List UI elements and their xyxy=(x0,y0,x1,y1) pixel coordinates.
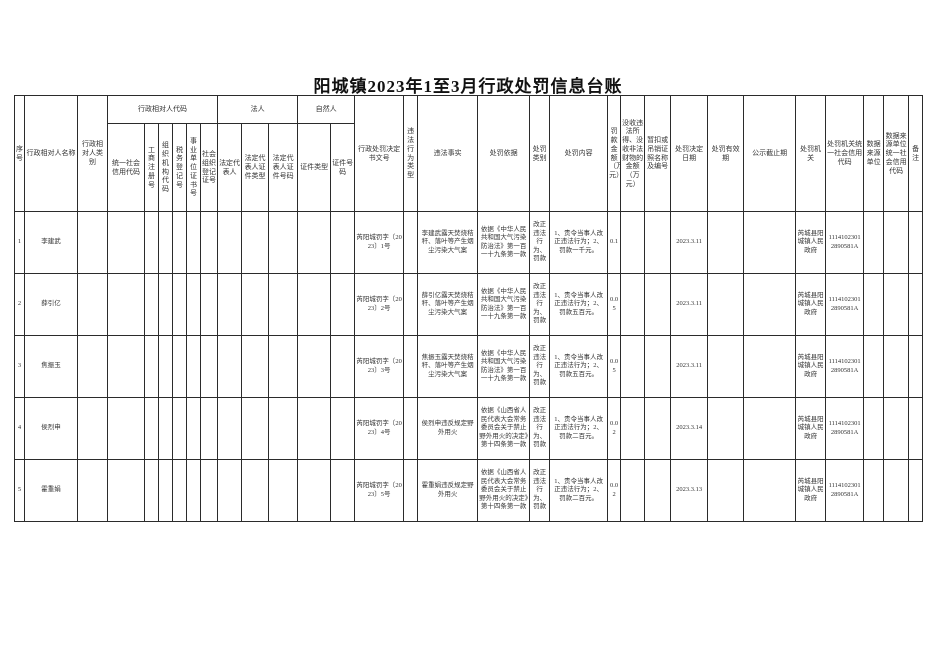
cell-content: 1、责令当事人改正违法行为；2、罚款二百元。 xyxy=(550,398,608,460)
cell-basis: 依据《山西省人民代表大会常务委员会关于禁止野外用火的决定》第十四条第一款 xyxy=(478,460,530,522)
cell-empty xyxy=(78,460,108,522)
cell-seq: 1 xyxy=(15,212,25,274)
cell-seq: 2 xyxy=(15,274,25,336)
col-header-organ-credit-code: 处罚机关统一社会信用代码 xyxy=(826,96,864,212)
page-title: 阳城镇2023年1至3月行政处罚信息台账 xyxy=(14,72,922,97)
cell-empty xyxy=(201,212,218,274)
cell-empty xyxy=(708,336,744,398)
cell-fact: 侯烈申违反规定野外用火 xyxy=(418,398,478,460)
cell-empty xyxy=(201,336,218,398)
table-row: 4侯烈申芮阳城罚字〔2023〕4号侯烈申违反规定野外用火依据《山西省人民代表大会… xyxy=(15,398,923,460)
header-group-row: 序号 行政相对人名称 行政相对人类别 行政相对人代码 法人 自然人 行政处罚决定… xyxy=(15,96,923,124)
cell-content: 1、责令当事人改正违法行为；2、罚款五百元。 xyxy=(550,274,608,336)
cell-empty xyxy=(159,460,173,522)
cell-empty xyxy=(621,274,645,336)
cell-empty xyxy=(331,460,355,522)
cell-empty xyxy=(645,336,671,398)
cell-doc-no: 芮阳城罚字〔2023〕5号 xyxy=(355,460,404,522)
cell-empty xyxy=(78,398,108,460)
cell-empty xyxy=(298,460,331,522)
cell-empty xyxy=(744,398,796,460)
col-group-party-code: 行政相对人代码 xyxy=(108,96,218,124)
cell-empty xyxy=(884,336,909,398)
penalty-ledger-table: 序号 行政相对人名称 行政相对人类别 行政相对人代码 法人 自然人 行政处罚决定… xyxy=(14,95,923,522)
table-header: 序号 行政相对人名称 行政相对人类别 行政相对人代码 法人 自然人 行政处罚决定… xyxy=(15,96,923,212)
cell-empty xyxy=(404,212,418,274)
cell-empty xyxy=(242,336,269,398)
cell-penalty-type: 改正违法行为、罚款 xyxy=(530,212,550,274)
cell-organ: 芮城县阳城镇人民政府 xyxy=(796,212,826,274)
cell-empty xyxy=(269,274,298,336)
cell-penalty-type: 改正违法行为、罚款 xyxy=(530,460,550,522)
table-row: 5霍重娟芮阳城罚字〔2023〕5号霍重娟违反规定野外用火依据《山西省人民代表大会… xyxy=(15,460,923,522)
cell-date: 2023.3.13 xyxy=(671,460,708,522)
col-header-penalty-type: 处罚类别 xyxy=(530,96,550,212)
cell-fact: 薛引亿露天焚烧秸秆、落叶等产生烟尘污染大气案 xyxy=(418,274,478,336)
cell-empty xyxy=(331,398,355,460)
cell-empty xyxy=(864,212,884,274)
cell-empty xyxy=(145,212,159,274)
cell-empty xyxy=(187,212,201,274)
cell-fine: 0.1 xyxy=(608,212,621,274)
cell-organ: 芮城县阳城镇人民政府 xyxy=(796,274,826,336)
col-group-natural-person: 自然人 xyxy=(298,96,355,124)
cell-basis: 依据《中华人民共和国大气污染防治法》第一百一十九条第一款 xyxy=(478,212,530,274)
col-header-legal-rep: 法定代表人 xyxy=(218,124,242,212)
cell-empty xyxy=(159,212,173,274)
cell-empty xyxy=(645,398,671,460)
cell-empty xyxy=(909,460,923,522)
cell-fact: 霍重娟违反规定野外用火 xyxy=(418,460,478,522)
cell-name: 霍重娟 xyxy=(25,460,78,522)
cell-name: 侯烈申 xyxy=(25,398,78,460)
cell-empty xyxy=(404,460,418,522)
cell-empty xyxy=(884,460,909,522)
cell-empty xyxy=(173,460,187,522)
cell-empty xyxy=(621,460,645,522)
cell-empty xyxy=(78,274,108,336)
cell-empty xyxy=(201,460,218,522)
col-header-validity-period: 处罚有效期 xyxy=(708,96,744,212)
cell-empty xyxy=(645,274,671,336)
col-group-legal-person: 法人 xyxy=(218,96,298,124)
col-header-legal-rep-id-type: 法定代表人证件类型 xyxy=(242,124,269,212)
cell-fine: 0.02 xyxy=(608,460,621,522)
cell-empty xyxy=(78,212,108,274)
cell-organ-code: 11141023012890581A xyxy=(826,460,864,522)
cell-empty xyxy=(218,336,242,398)
cell-basis: 依据《中华人民共和国大气污染防治法》第一百一十九条第一款 xyxy=(478,274,530,336)
col-header-penalty-content: 处罚内容 xyxy=(550,96,608,212)
cell-doc-no: 芮阳城罚字〔2023〕1号 xyxy=(355,212,404,274)
cell-empty xyxy=(78,336,108,398)
col-header-name: 行政相对人名称 xyxy=(25,96,78,212)
cell-penalty-type: 改正违法行为、罚款 xyxy=(530,336,550,398)
cell-date: 2023.3.11 xyxy=(671,336,708,398)
cell-doc-no: 芮阳城罚字〔2023〕4号 xyxy=(355,398,404,460)
cell-organ-code: 11141023012890581A xyxy=(826,274,864,336)
table-row: 3焦振玉芮阳城罚字〔2023〕3号焦振玉露天焚烧秸秆、落叶等产生烟尘污染大气案依… xyxy=(15,336,923,398)
cell-empty xyxy=(218,460,242,522)
cell-empty xyxy=(187,398,201,460)
cell-empty xyxy=(242,398,269,460)
cell-empty xyxy=(404,398,418,460)
cell-empty xyxy=(298,336,331,398)
cell-empty xyxy=(744,336,796,398)
cell-empty xyxy=(744,274,796,336)
cell-empty xyxy=(159,398,173,460)
cell-empty xyxy=(864,460,884,522)
cell-empty xyxy=(218,212,242,274)
cell-empty xyxy=(145,460,159,522)
cell-organ: 芮城县阳城镇人民政府 xyxy=(796,336,826,398)
col-header-doc-no: 行政处罚决定书文号 xyxy=(355,96,404,212)
col-header-seq: 序号 xyxy=(15,96,25,212)
col-header-decision-date: 处罚决定日期 xyxy=(671,96,708,212)
cell-name: 薛引亿 xyxy=(25,274,78,336)
cell-empty xyxy=(159,336,173,398)
col-header-confiscation-amount: 没收违法所得、没收非法财物的金额（万元） xyxy=(621,96,645,212)
cell-fine: 0.02 xyxy=(608,398,621,460)
cell-empty xyxy=(145,398,159,460)
cell-penalty-type: 改正违法行为、罚款 xyxy=(530,274,550,336)
col-header-credit-code: 统一社会信用代码 xyxy=(108,124,145,212)
cell-organ-code: 11141023012890581A xyxy=(826,212,864,274)
cell-organ-code: 11141023012890581A xyxy=(826,336,864,398)
cell-basis: 依据《中华人民共和国大气污染防治法》第一百一十九条第一款 xyxy=(478,336,530,398)
col-header-natural-id-type: 证件类型 xyxy=(298,124,331,212)
cell-name: 李建武 xyxy=(25,212,78,274)
cell-empty xyxy=(108,274,145,336)
col-header-fact: 违法事实 xyxy=(418,96,478,212)
cell-empty xyxy=(187,274,201,336)
cell-empty xyxy=(269,212,298,274)
cell-empty xyxy=(331,336,355,398)
cell-doc-no: 芮阳城罚字〔2023〕2号 xyxy=(355,274,404,336)
cell-empty xyxy=(269,398,298,460)
cell-empty xyxy=(621,398,645,460)
col-header-remarks: 备注 xyxy=(909,96,923,212)
cell-empty xyxy=(201,398,218,460)
cell-empty xyxy=(708,274,744,336)
cell-empty xyxy=(187,460,201,522)
cell-empty xyxy=(864,336,884,398)
cell-empty xyxy=(269,336,298,398)
table-row: 1李建武芮阳城罚字〔2023〕1号李建武露天焚烧秸秆、落叶等产生烟尘污染大气案依… xyxy=(15,212,923,274)
cell-empty xyxy=(404,274,418,336)
cell-content: 1、责令当事人改正违法行为；2、罚款二百元。 xyxy=(550,460,608,522)
cell-empty xyxy=(242,212,269,274)
cell-empty xyxy=(108,460,145,522)
cell-empty xyxy=(404,336,418,398)
cell-empty xyxy=(218,398,242,460)
cell-empty xyxy=(884,274,909,336)
cell-fine: 0.05 xyxy=(608,336,621,398)
col-header-tax-reg-no: 税务登记号 xyxy=(173,124,187,212)
cell-empty xyxy=(187,336,201,398)
cell-content: 1、责令当事人改正违法行为；2、罚款一千元。 xyxy=(550,212,608,274)
cell-empty xyxy=(173,398,187,460)
col-header-fine-amount: 罚款金额（万元） xyxy=(608,96,621,212)
cell-empty xyxy=(909,274,923,336)
cell-empty xyxy=(201,274,218,336)
cell-empty xyxy=(864,398,884,460)
cell-date: 2023.3.11 xyxy=(671,274,708,336)
cell-doc-no: 芮阳城罚字〔2023〕3号 xyxy=(355,336,404,398)
cell-name: 焦振玉 xyxy=(25,336,78,398)
cell-empty xyxy=(218,274,242,336)
cell-empty xyxy=(744,212,796,274)
cell-empty xyxy=(173,212,187,274)
table-row: 2薛引亿芮阳城罚字〔2023〕2号薛引亿露天焚烧秸秆、落叶等产生烟尘污染大气案依… xyxy=(15,274,923,336)
cell-empty xyxy=(708,398,744,460)
cell-content: 1、责令当事人改正违法行为；2、罚款五百元。 xyxy=(550,336,608,398)
table-body: 1李建武芮阳城罚字〔2023〕1号李建武露天焚烧秸秆、落叶等产生烟尘污染大气案依… xyxy=(15,212,923,522)
cell-empty xyxy=(145,274,159,336)
cell-seq: 4 xyxy=(15,398,25,460)
cell-fine: 0.05 xyxy=(608,274,621,336)
cell-seq: 5 xyxy=(15,460,25,522)
cell-empty xyxy=(708,212,744,274)
cell-empty xyxy=(621,336,645,398)
cell-fact: 李建武露天焚烧秸秆、落叶等产生烟尘污染大气案 xyxy=(418,212,478,274)
spreadsheet-page: 阳城镇2023年1至3月行政处罚信息台账 序号 行政相对人名称 行政相对人类别 … xyxy=(0,0,936,662)
cell-empty xyxy=(909,212,923,274)
col-header-license-revoked: 暂扣或吊销证照名称及编号 xyxy=(645,96,671,212)
col-header-source-credit-code: 数据来源单位统一社会信用代码 xyxy=(884,96,909,212)
cell-empty xyxy=(269,460,298,522)
cell-empty xyxy=(708,460,744,522)
col-header-penalty-organ: 处罚机关 xyxy=(796,96,826,212)
cell-date: 2023.3.11 xyxy=(671,212,708,274)
cell-penalty-type: 改正违法行为、罚款 xyxy=(530,398,550,460)
cell-fact: 焦振玉露天焚烧秸秆、落叶等产生烟尘污染大气案 xyxy=(418,336,478,398)
cell-organ: 芮城县阳城镇人民政府 xyxy=(796,398,826,460)
cell-empty xyxy=(884,212,909,274)
cell-empty xyxy=(298,274,331,336)
cell-empty xyxy=(645,460,671,522)
cell-empty xyxy=(298,398,331,460)
col-header-category: 行政相对人类别 xyxy=(78,96,108,212)
col-header-violation-type: 违法行为类型 xyxy=(404,96,418,212)
cell-empty xyxy=(242,274,269,336)
cell-empty xyxy=(744,460,796,522)
col-header-business-reg-no: 工商注册号 xyxy=(145,124,159,212)
cell-organ-code: 11141023012890581A xyxy=(826,398,864,460)
col-header-natural-id-no: 证件号码 xyxy=(331,124,355,212)
col-header-org-code: 组织机构代码 xyxy=(159,124,173,212)
cell-empty xyxy=(331,274,355,336)
cell-empty xyxy=(645,212,671,274)
cell-empty xyxy=(909,398,923,460)
col-header-institution-cert-no: 事业单位证书号 xyxy=(187,124,201,212)
cell-date: 2023.3.14 xyxy=(671,398,708,460)
cell-empty xyxy=(108,212,145,274)
cell-empty xyxy=(864,274,884,336)
cell-empty xyxy=(242,460,269,522)
col-header-publicity-deadline: 公示截止期 xyxy=(744,96,796,212)
col-header-social-org-reg-no: 社会组织登记证号 xyxy=(201,124,218,212)
cell-empty xyxy=(145,336,159,398)
col-header-legal-rep-id-no: 法定代表人证件号码 xyxy=(269,124,298,212)
cell-empty xyxy=(331,212,355,274)
cell-seq: 3 xyxy=(15,336,25,398)
cell-empty xyxy=(173,336,187,398)
cell-empty xyxy=(909,336,923,398)
cell-empty xyxy=(621,212,645,274)
cell-empty xyxy=(159,274,173,336)
col-header-basis: 处罚依据 xyxy=(478,96,530,212)
cell-organ: 芮城县阳城镇人民政府 xyxy=(796,460,826,522)
cell-empty xyxy=(298,212,331,274)
cell-empty xyxy=(108,336,145,398)
cell-empty xyxy=(173,274,187,336)
cell-empty xyxy=(108,398,145,460)
col-header-data-source: 数据来源单位 xyxy=(864,96,884,212)
cell-basis: 依据《山西省人民代表大会常务委员会关于禁止野外用火的决定》第十四条第一款 xyxy=(478,398,530,460)
cell-empty xyxy=(884,398,909,460)
